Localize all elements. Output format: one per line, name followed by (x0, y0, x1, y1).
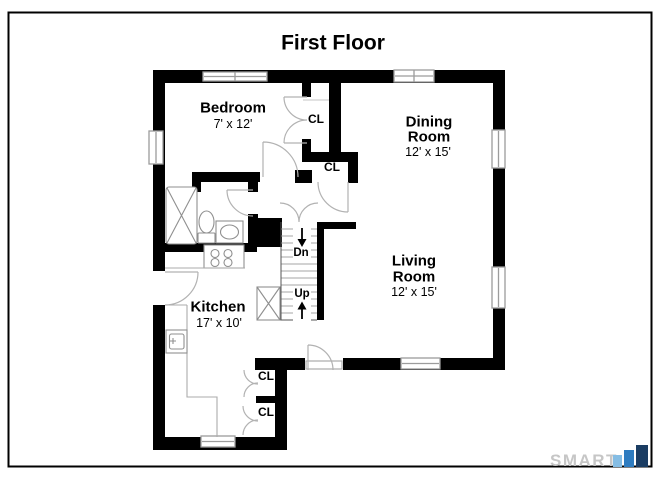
bedroom-door (263, 142, 298, 177)
bathroom-door (227, 190, 253, 216)
wall-bath-east-upper (248, 172, 258, 192)
wall-closet-divider (256, 396, 279, 403)
floorplan-page: First Floor (0, 0, 666, 484)
bedroom-label: Bedroom (200, 100, 266, 117)
toilet (198, 211, 215, 243)
wall-closet1-stub-bottom (302, 139, 311, 152)
front-door-threshold (306, 361, 342, 369)
closet3-bifold-door (244, 370, 258, 397)
staircase: Dn Up (281, 222, 317, 321)
floorplan-drawing: First Floor (0, 0, 666, 484)
window-kitchen-south (201, 436, 235, 447)
smart-logo: SMART (550, 445, 648, 470)
closet4-label: CL (258, 405, 274, 419)
closet2-door (318, 182, 348, 212)
bar-chart-icon (613, 445, 648, 467)
wall-stair-east (317, 222, 324, 320)
living-room-dims: 12' x 15' (391, 285, 437, 299)
window-bedroom-north (203, 72, 267, 81)
wall-closet-right (275, 358, 287, 450)
closet4-bifold-door (243, 406, 258, 435)
bathtub (166, 187, 197, 244)
living-room-label-line2: Room (393, 269, 436, 286)
dining-room-dims: 12' x 15' (405, 145, 451, 159)
wall-closet2-east (348, 152, 358, 183)
window-living-east (492, 267, 505, 308)
closet1-double-doors (284, 97, 307, 143)
wall-west (153, 70, 165, 450)
bedroom-dims: 7' x 12' (214, 117, 253, 131)
kitchen-label: Kitchen (190, 299, 245, 316)
side-door-opening (153, 271, 165, 305)
bathroom-sink (216, 221, 243, 243)
stairs-down-label: Dn (293, 247, 308, 259)
closet3-label: CL (258, 369, 274, 383)
dining-room-label-line2: Room (408, 129, 451, 146)
chimney-block (250, 218, 282, 247)
window-dining-east (492, 130, 505, 168)
shaft-x-box (257, 287, 280, 320)
window-dining-north (394, 70, 434, 82)
smart-logo-text: SMART (550, 451, 618, 470)
wall-east (493, 70, 505, 370)
window-living-south (401, 358, 440, 369)
closet1-label: CL (308, 112, 324, 126)
kitchen-sink (166, 330, 187, 353)
wall-closet1-stub-top (302, 83, 311, 97)
wall-south-main (255, 358, 505, 370)
wall-closet1-east (329, 83, 341, 152)
stair-double-doors (280, 203, 318, 222)
window-bedroom-west (149, 131, 163, 164)
wall-stair-stub (324, 222, 356, 229)
closet2-label: CL (324, 160, 340, 174)
page-title: First Floor (281, 32, 385, 55)
stove (204, 245, 244, 268)
living-room-label-line1: Living (392, 253, 436, 270)
stairs-up-label: Up (294, 288, 309, 300)
kitchen-dims: 17' x 10' (196, 316, 242, 330)
